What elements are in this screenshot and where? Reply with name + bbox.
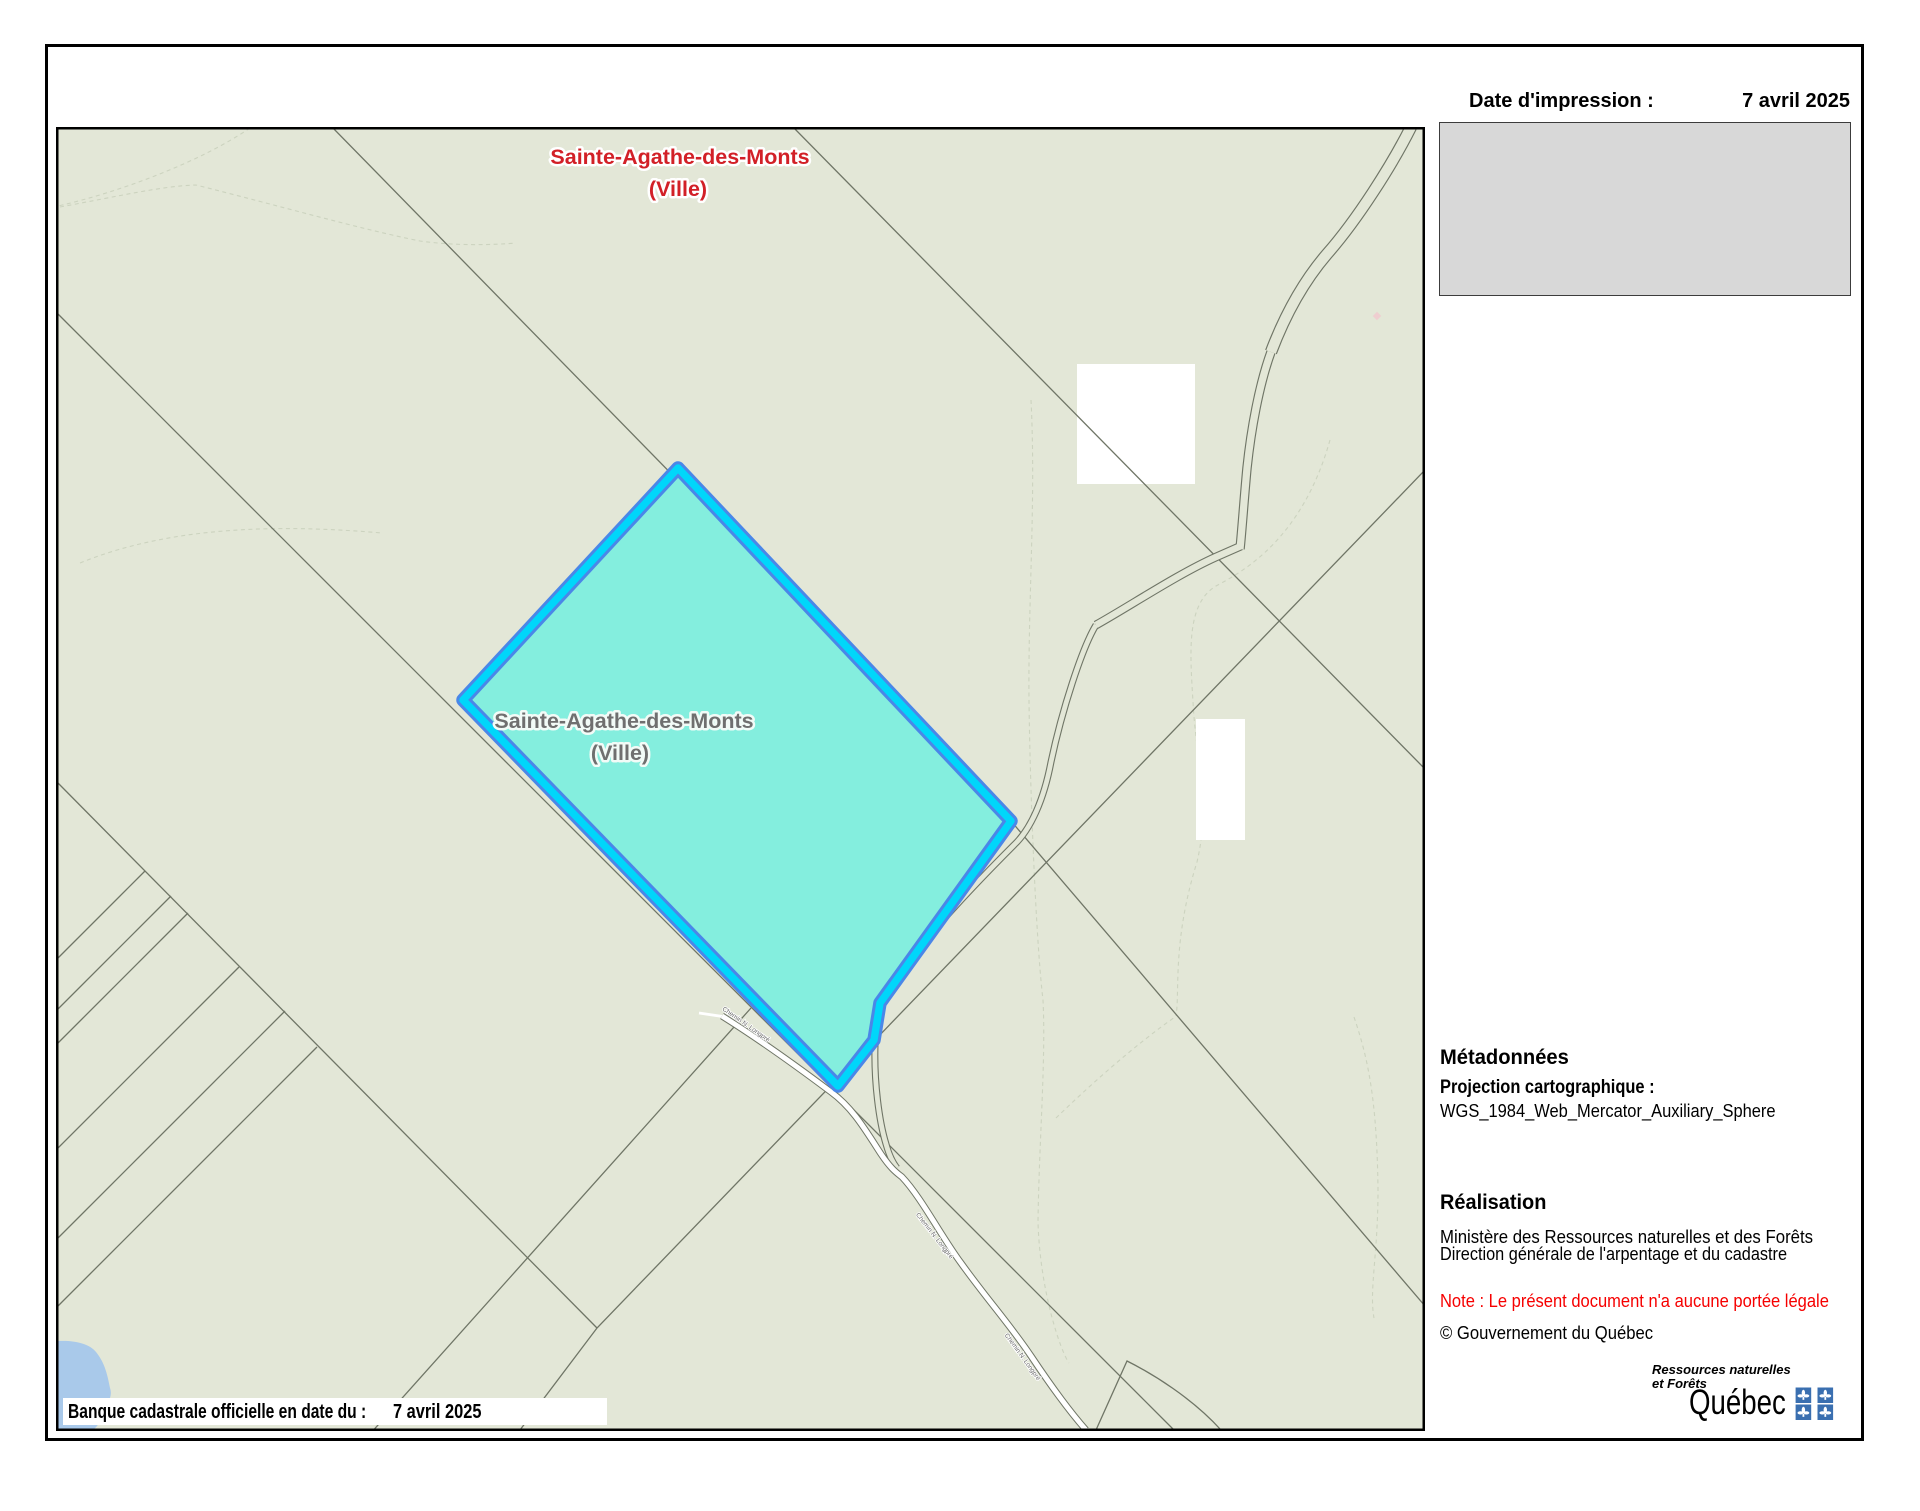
svg-text:Sainte-Agathe-des-Monts: Sainte-Agathe-des-Monts [494,709,753,733]
svg-text:Sainte-Agathe-des-Monts: Sainte-Agathe-des-Monts [550,145,809,169]
svg-text:(Ville): (Ville) [591,741,649,765]
svg-text:(Ville): (Ville) [649,177,707,201]
